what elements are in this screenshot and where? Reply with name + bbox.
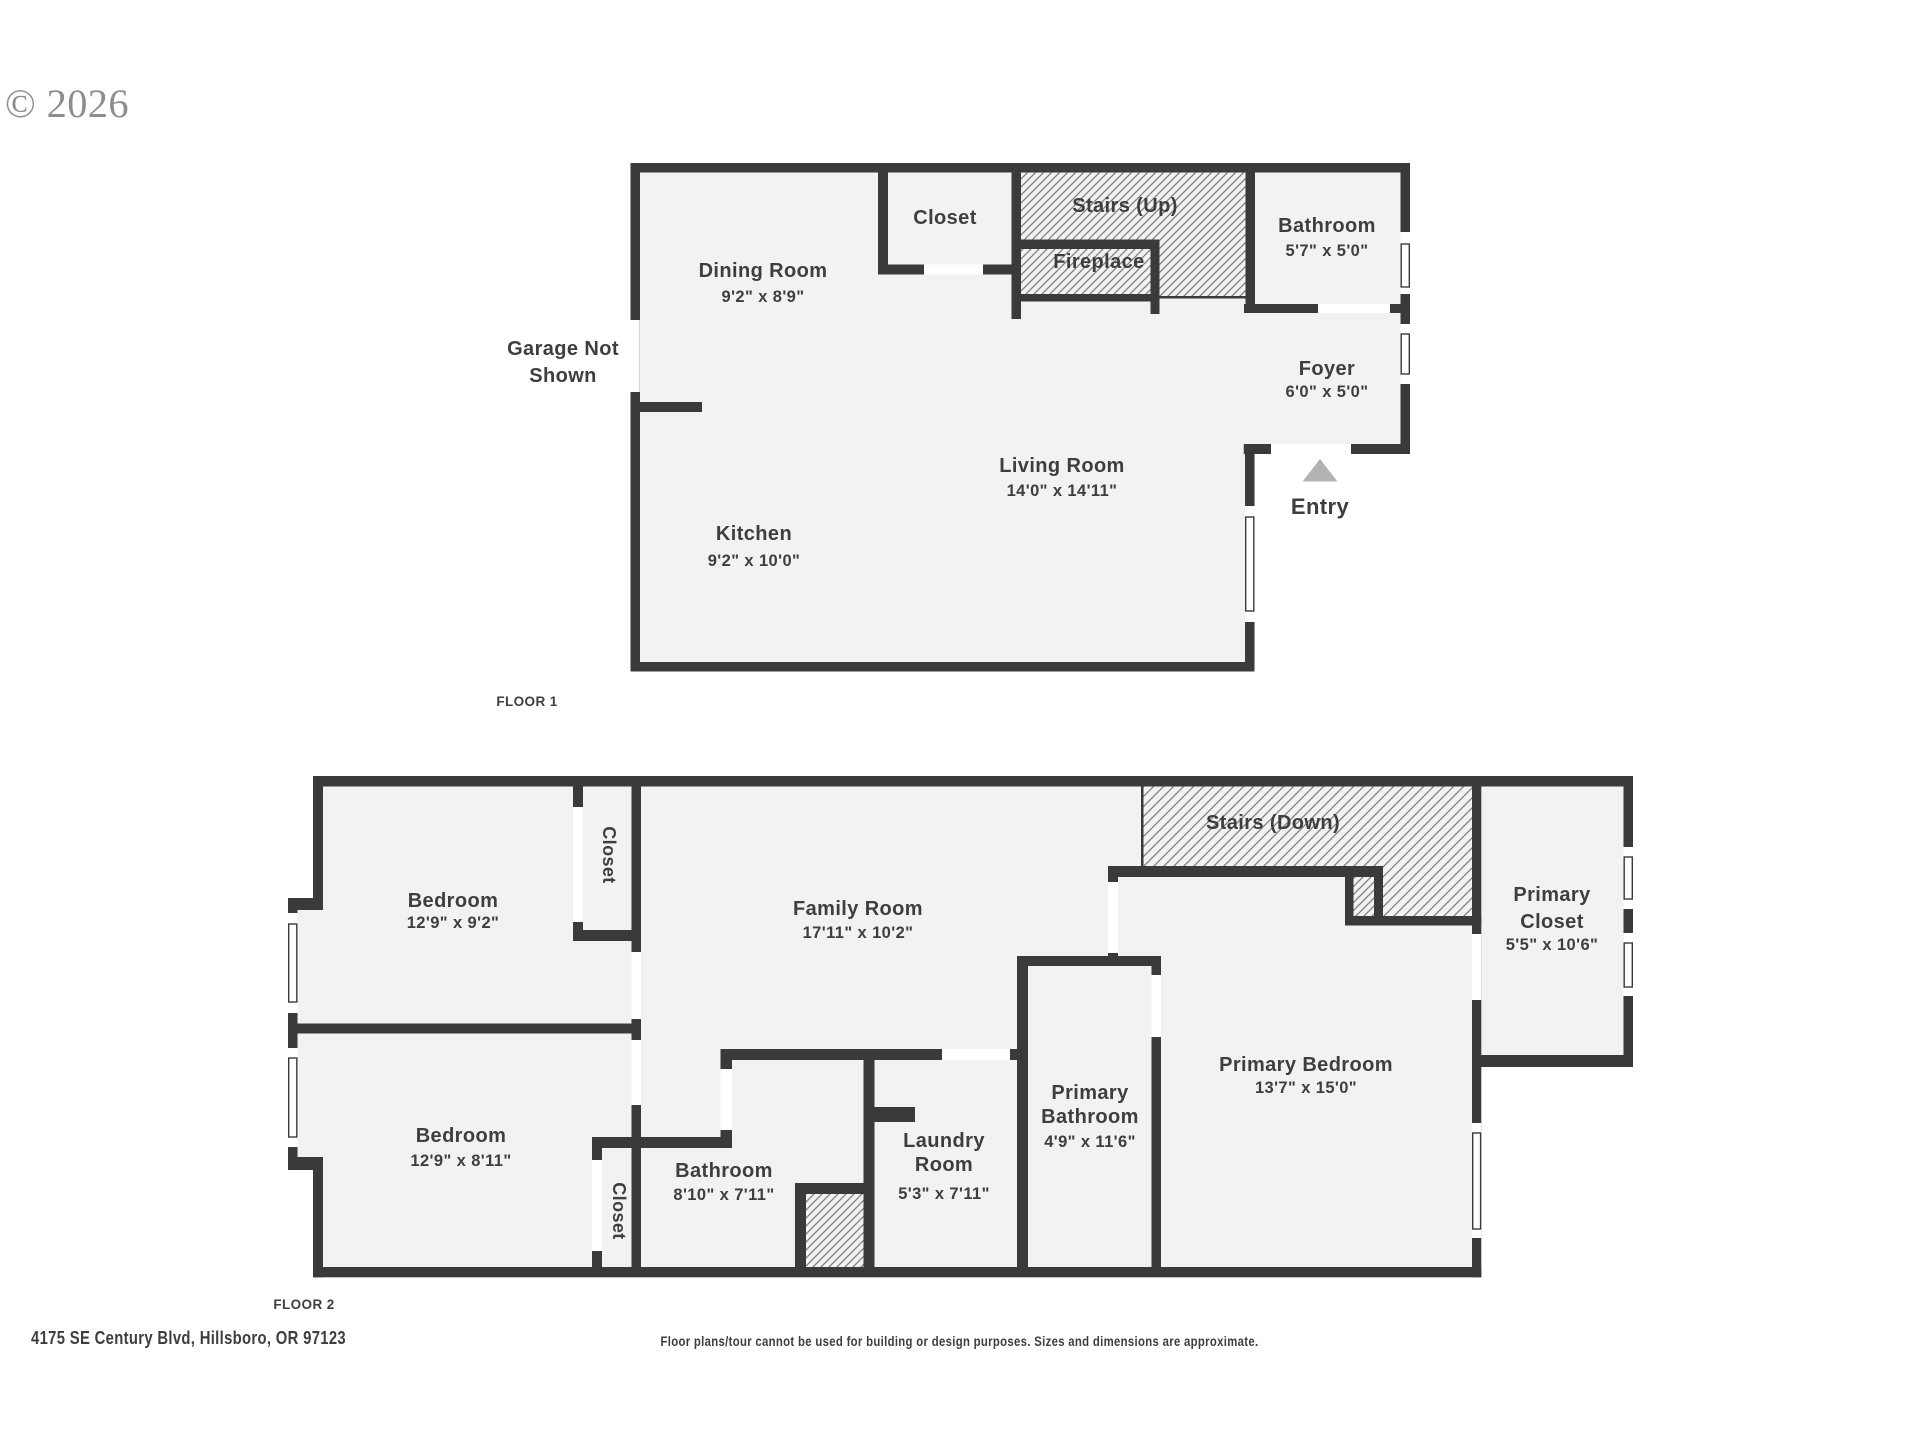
svg-text:Fireplace: Fireplace [1053, 251, 1144, 273]
svg-text:13'7" x 15'0": 13'7" x 15'0" [1255, 1079, 1357, 1097]
svg-text:Garage Not: Garage Not [507, 338, 619, 360]
svg-text:5'7" x 5'0": 5'7" x 5'0" [1286, 242, 1369, 260]
svg-text:FLOOR 1: FLOOR 1 [496, 694, 557, 709]
svg-text:Closet: Closet [913, 207, 977, 229]
svg-text:14'0" x 14'11": 14'0" x 14'11" [1007, 482, 1118, 500]
svg-text:Primary: Primary [1513, 884, 1591, 906]
svg-text:Floor plans/tour cannot be use: Floor plans/tour cannot be used for buil… [661, 1333, 1259, 1349]
svg-text:Bedroom: Bedroom [416, 1125, 507, 1147]
svg-text:Room: Room [915, 1154, 973, 1176]
svg-text:5'5" x 10'6": 5'5" x 10'6" [1506, 936, 1599, 954]
svg-text:Foyer: Foyer [1299, 358, 1355, 380]
svg-text:5'3" x 7'11": 5'3" x 7'11" [898, 1185, 990, 1203]
svg-text:Living Room: Living Room [999, 455, 1125, 477]
svg-text:Kitchen: Kitchen [716, 523, 792, 545]
svg-text:Primary: Primary [1051, 1082, 1129, 1104]
svg-text:Closet: Closet [1520, 911, 1584, 933]
svg-text:Bathroom: Bathroom [1041, 1106, 1139, 1128]
svg-text:8'10" x 7'11": 8'10" x 7'11" [673, 1186, 774, 1204]
svg-text:17'11" x 10'2": 17'11" x 10'2" [803, 924, 914, 942]
svg-text:Primary Bedroom: Primary Bedroom [1219, 1054, 1393, 1076]
svg-text:Bathroom: Bathroom [1278, 215, 1376, 237]
svg-text:Shown: Shown [529, 365, 597, 387]
svg-text:Stairs (Up): Stairs (Up) [1072, 195, 1178, 217]
svg-text:12'9" x 9'2": 12'9" x 9'2" [407, 914, 500, 932]
svg-text:4175 SE Century Blvd, Hillsbor: 4175 SE Century Blvd, Hillsboro, OR 9712… [31, 1328, 346, 1348]
svg-text:Stairs (Down): Stairs (Down) [1206, 812, 1340, 834]
svg-text:Bedroom: Bedroom [408, 890, 499, 912]
svg-text:12'9" x 8'11": 12'9" x 8'11" [410, 1152, 511, 1170]
svg-text:9'2" x 10'0": 9'2" x 10'0" [708, 552, 801, 570]
svg-text:Family Room: Family Room [793, 898, 923, 920]
svg-text:© 2026: © 2026 [5, 81, 129, 126]
svg-text:6'0" x 5'0": 6'0" x 5'0" [1286, 383, 1369, 401]
svg-text:Bathroom: Bathroom [675, 1160, 773, 1182]
svg-text:Closet: Closet [599, 826, 619, 883]
svg-text:Closet: Closet [609, 1182, 629, 1239]
svg-text:Laundry: Laundry [903, 1130, 985, 1152]
svg-text:9'2" x 8'9": 9'2" x 8'9" [722, 288, 805, 306]
svg-text:Entry: Entry [1291, 494, 1350, 519]
svg-text:Dining Room: Dining Room [699, 260, 828, 282]
svg-text:FLOOR 2: FLOOR 2 [273, 1297, 334, 1312]
svg-text:4'9" x 11'6": 4'9" x 11'6" [1044, 1133, 1136, 1151]
